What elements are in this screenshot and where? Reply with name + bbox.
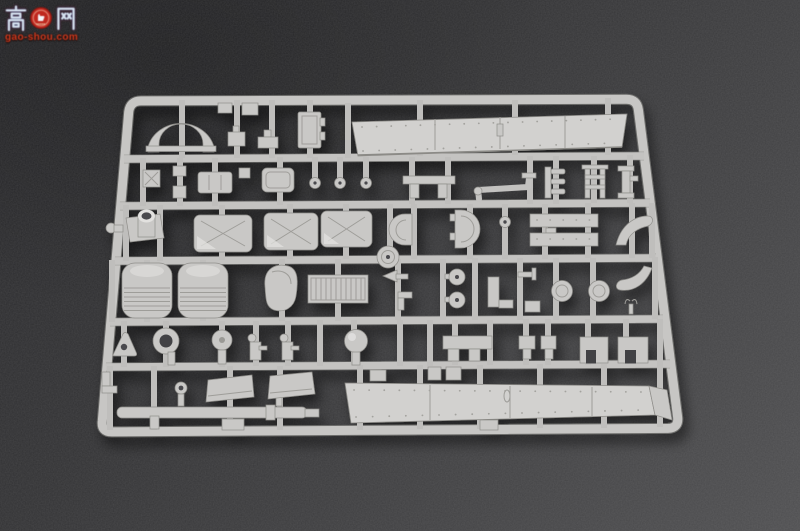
part-seat-cushion: [262, 168, 294, 192]
part-wedge-plate-2: [268, 372, 315, 399]
part-slat-bar-1: [530, 214, 598, 227]
part-fuel-tank-1: [122, 263, 172, 318]
part-eyelet-disc: [500, 217, 511, 228]
part-notched-box-2: [618, 337, 648, 364]
part-curved-fender: [265, 265, 297, 311]
gaoshou-logo-char-gao: [4, 5, 28, 31]
part-fuel-tank-2: [178, 263, 228, 318]
part-radiator-grille: [308, 275, 368, 303]
part-square-clamp: [143, 170, 160, 187]
part-hatch-cover-2: [264, 213, 318, 250]
gaoshou-logo: [4, 5, 78, 31]
part-wheel-disc-1: [552, 281, 573, 302]
part-wheel-disc-2: [589, 281, 610, 302]
part-pulley-row: [310, 178, 372, 189]
gaoshou-domain-text: gao-shou.com: [4, 32, 78, 43]
sprue-photo: gao-shou.com: [0, 0, 800, 531]
part-hatch-cover-1: [194, 215, 252, 252]
gaoshou-logo-char-wang: [54, 5, 78, 31]
part-seat-base: [198, 172, 232, 193]
sprue-scene: [0, 0, 800, 531]
part-notched-box-1: [580, 337, 608, 364]
part-hatch-cover-3: [321, 211, 372, 247]
part-road-wheel: [377, 246, 399, 268]
part-fork-bracket: [545, 167, 565, 198]
gaoshou-watermark: gao-shou.com: [4, 5, 78, 43]
gaoshou-logo-badge: [29, 6, 53, 30]
part-stowage-box: [298, 112, 325, 148]
